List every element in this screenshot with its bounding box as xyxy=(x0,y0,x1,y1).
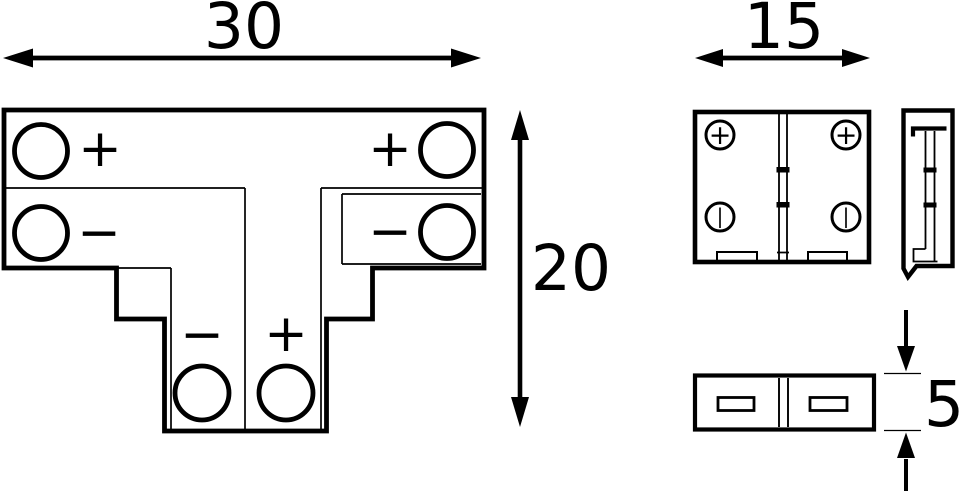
arrowhead-down-icon xyxy=(897,346,915,372)
side-slot-lines xyxy=(914,131,938,262)
arrowhead-up-icon xyxy=(897,433,915,459)
polarity-minus-sign: − xyxy=(77,203,121,263)
seam-latch-bar xyxy=(924,203,937,208)
drawing-canvas: 30 20 + + − − − + 15 xyxy=(0,0,960,494)
seam-latch-bar xyxy=(777,167,790,173)
t-outline xyxy=(4,110,484,431)
contact-pad-circle xyxy=(259,366,313,420)
seam-latch-bar xyxy=(777,202,790,208)
polarity-minus-sign: − xyxy=(368,202,412,262)
seam-latch-bar xyxy=(924,168,937,173)
dim-thickness-label: 5 xyxy=(924,368,960,441)
t-connector-top-view: + + − − − + xyxy=(4,110,484,431)
connector-bottom-view xyxy=(695,376,874,430)
contact-pad-circle xyxy=(175,366,229,420)
contact-bar-mark: | xyxy=(843,204,850,228)
arrowhead-left-icon xyxy=(3,49,33,68)
strip-slot xyxy=(810,398,847,411)
arrowhead-right-icon xyxy=(451,49,481,68)
arrowhead-right-icon xyxy=(842,49,870,67)
contact-plus-mark: + xyxy=(709,120,732,151)
dim-width-label: 30 xyxy=(204,0,284,63)
polarity-plus-sign: + xyxy=(368,119,412,179)
contact-pad-circle xyxy=(421,206,474,259)
strip-slot xyxy=(718,398,754,411)
arrowhead-down-icon xyxy=(511,397,529,427)
t-inner-contours xyxy=(4,188,484,431)
polarity-minus-sign: − xyxy=(180,305,224,365)
contact-plus-mark: + xyxy=(835,120,858,151)
contact-pad-circle xyxy=(15,125,68,178)
contact-pad-circle xyxy=(15,207,68,260)
contact-pad-circle xyxy=(421,124,474,177)
dim-front-width-label: 15 xyxy=(744,0,824,63)
dim-width: 30 xyxy=(3,0,481,68)
dim-height-label: 20 xyxy=(531,232,611,305)
side-outline xyxy=(904,111,953,278)
contact-bar-mark: | xyxy=(717,204,724,228)
polarity-plus-sign: + xyxy=(264,304,308,364)
connector-front-view: + + | | xyxy=(695,112,869,262)
side-inner-bar xyxy=(913,129,947,137)
dim-thickness: 5 xyxy=(884,310,960,491)
polarity-plus-sign: + xyxy=(78,119,122,179)
bottom-seam-lines xyxy=(779,378,788,427)
front-seam-lines xyxy=(777,114,789,260)
technical-drawing: 30 20 + + − − − + 15 xyxy=(0,0,960,494)
dim-front-width: 15 xyxy=(695,0,870,67)
connector-side-view xyxy=(904,111,953,278)
arrowhead-left-icon xyxy=(695,49,723,67)
arrowhead-up-icon xyxy=(511,110,529,140)
dim-height: 20 xyxy=(511,110,611,427)
